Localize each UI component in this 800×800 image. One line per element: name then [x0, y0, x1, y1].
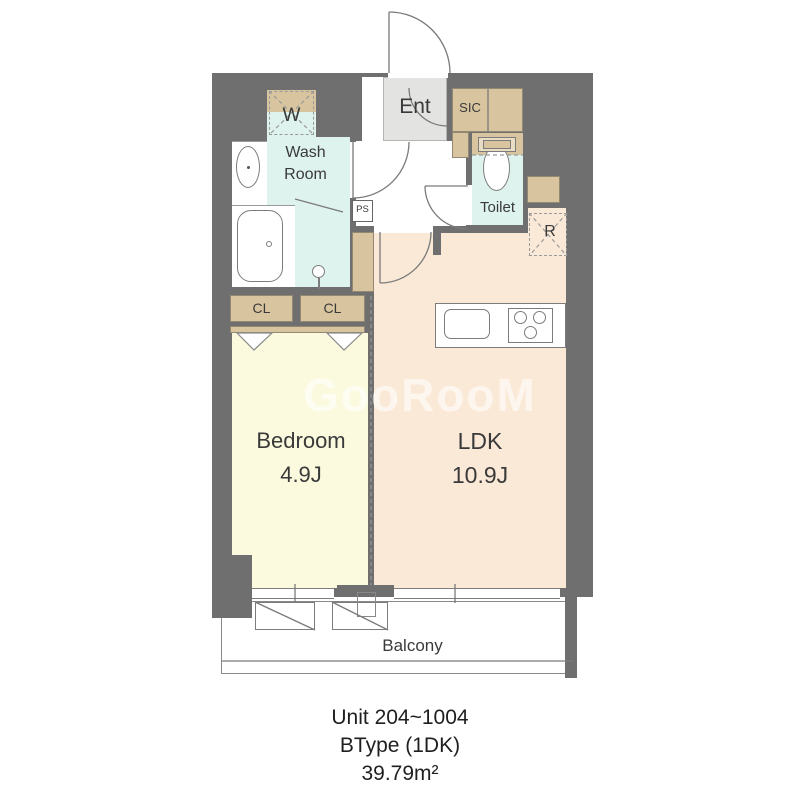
entry-side-strip [362, 77, 383, 141]
bedroom-label: Bedroom [225, 424, 377, 458]
balcony-pillar-outline [357, 592, 376, 617]
shower-stem-icon [318, 278, 320, 289]
site-watermark: GooRooM [280, 368, 560, 422]
entrance-doorway-gap [388, 73, 448, 78]
ldk-label: LDK [390, 424, 570, 458]
basin-drain-dot [247, 166, 250, 169]
closet-front-bar [230, 326, 365, 333]
entrance-label: Ent [383, 95, 447, 119]
burner-icon-3 [524, 326, 537, 339]
ldk-window [394, 588, 560, 599]
floorplan-canvas: Ent SIC W Wash Room Toilet PS R CL CL Be… [0, 0, 800, 800]
wall-balcony-pillar [565, 593, 577, 678]
burner-icon-1 [514, 311, 527, 324]
unit-caption: Unit 204~1004 BType (1DK) 39.79m² [0, 704, 800, 788]
washer-label: W [269, 105, 314, 127]
sic-label: SIC [450, 101, 490, 116]
ldk-size-label: 10.9J [390, 458, 570, 492]
ldk-label-block: LDK 10.9J [390, 424, 570, 492]
bedroom-label-block: Bedroom 4.9J [225, 424, 377, 492]
caption-unit-area: 39.79m² [0, 760, 800, 788]
washroom-label: Wash Room [258, 142, 353, 186]
closet-right-label: CL [300, 300, 365, 316]
shower-head-icon [312, 265, 325, 278]
toilet-label: Toilet [455, 199, 540, 216]
wall-door-stub [433, 226, 441, 255]
caption-unit-range: Unit 204~1004 [0, 704, 800, 732]
bedroom-size-label: 4.9J [225, 458, 377, 492]
tub-drain-icon [266, 241, 272, 247]
kitchen-sink-icon [444, 309, 490, 339]
ldk-doorway-gap [374, 226, 433, 233]
toilet-tank-lid-icon [483, 140, 511, 149]
burner-icon-2 [533, 311, 546, 324]
wall-closet-side-sliver [365, 295, 374, 333]
closet-left-label: CL [230, 300, 293, 316]
caption-unit-type: BType (1DK) [0, 732, 800, 760]
entrance-door-swing-arc [389, 12, 450, 73]
sic-sub-box [452, 132, 469, 158]
wall-bottom-left-block [212, 555, 252, 618]
balcony-label: Balcony [345, 636, 480, 656]
bathtub-icon [237, 210, 283, 282]
bedroom-window [252, 588, 334, 599]
fridge-label: R [535, 223, 565, 241]
pipe-column-box [352, 232, 374, 292]
washroom-label-line2: Room [258, 164, 353, 186]
ps-label: PS [352, 205, 373, 216]
washroom-label-line1: Wash [258, 142, 353, 164]
balcony-equipment-1 [255, 602, 315, 630]
